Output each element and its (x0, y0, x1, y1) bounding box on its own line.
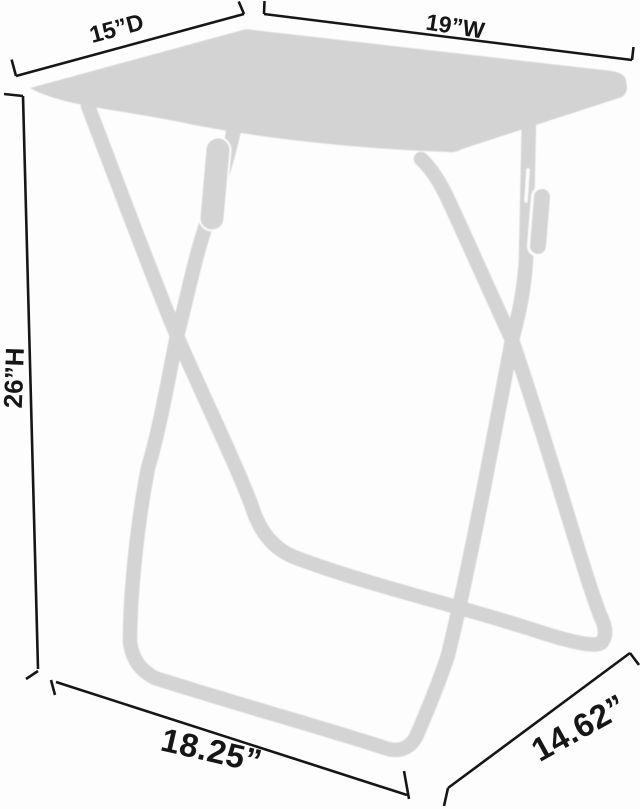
svg-text:26”H: 26”H (0, 347, 30, 409)
